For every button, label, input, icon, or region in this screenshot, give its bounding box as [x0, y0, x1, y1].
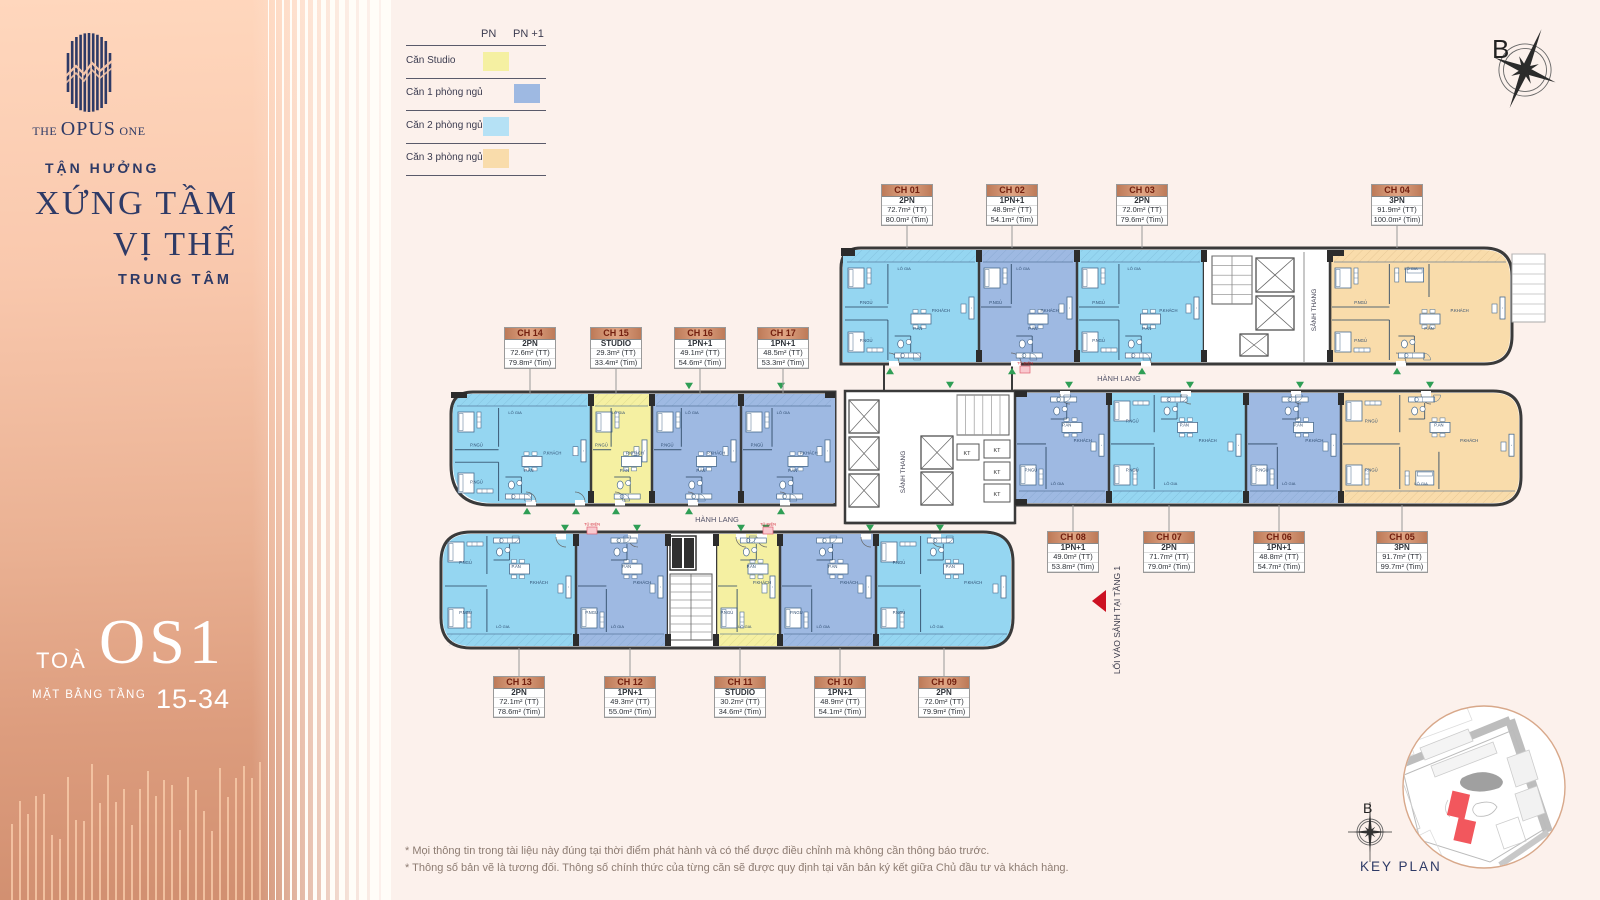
svg-text:B: B [1492, 34, 1509, 64]
svg-text:B: B [1363, 800, 1372, 816]
svg-text:KEY PLAN: KEY PLAN [1360, 859, 1442, 874]
